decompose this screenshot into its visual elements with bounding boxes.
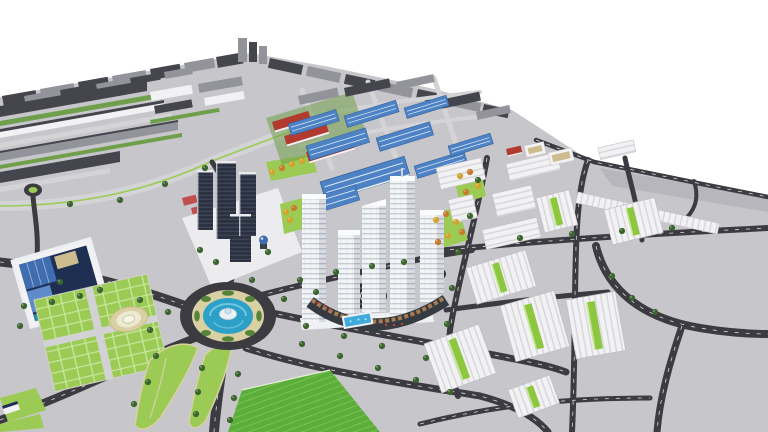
white-tower <box>362 199 386 312</box>
white-tower <box>390 168 415 318</box>
scene-svg <box>0 0 768 432</box>
white-tower <box>338 230 360 322</box>
housing-block-green <box>566 291 626 359</box>
housing-block <box>448 194 478 223</box>
white-tower <box>420 210 444 302</box>
fountain-roundabout <box>180 282 276 350</box>
city-masterplan-render <box>0 0 768 432</box>
globe-monument <box>259 236 268 250</box>
